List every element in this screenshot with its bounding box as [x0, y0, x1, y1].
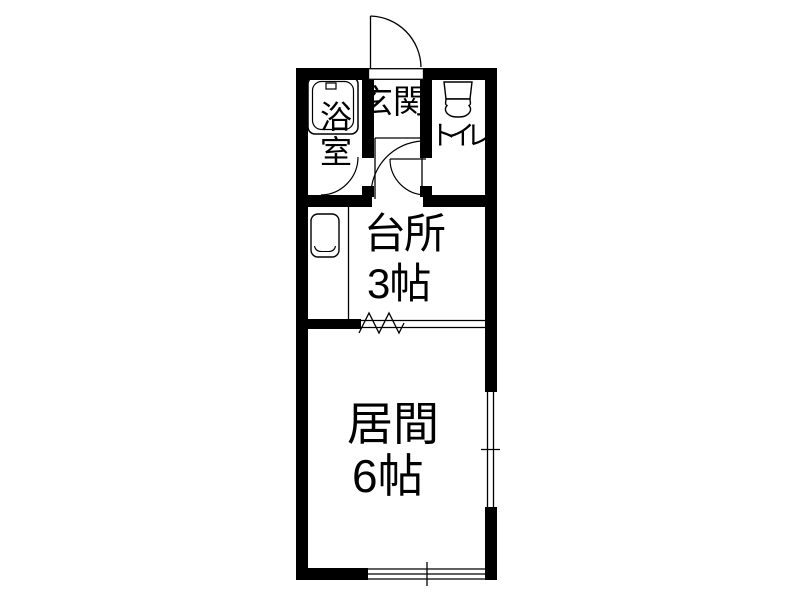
- toilet-icon: [444, 82, 472, 117]
- kitchen-size-label: 3帖: [367, 261, 430, 306]
- entrance-label: 玄関: [360, 84, 426, 120]
- wall-bottom-left: [296, 568, 368, 580]
- accordion-partition: [359, 313, 485, 333]
- wall-right-upper: [485, 68, 497, 392]
- kitchen-counter: [311, 207, 349, 319]
- living-label: 居間: [347, 400, 439, 450]
- bathroom-label: 浴室: [317, 100, 355, 170]
- kitchen-door-swing-arc: [371, 141, 422, 196]
- wall-right-lower: [485, 507, 497, 580]
- entrance-door-swing-arc: [371, 16, 422, 67]
- toilet-label: トイレ: [430, 122, 484, 151]
- kitchen-label: 台所: [364, 211, 444, 256]
- wall-mid-right: [423, 195, 497, 207]
- living-size-label: 6帖: [352, 452, 424, 502]
- accordion-fold-zigzag: [359, 313, 404, 333]
- toilet-tank: [444, 82, 472, 99]
- bathtub-handle: [326, 83, 336, 89]
- wall-kitchen-living: [296, 319, 361, 329]
- wall-mid-left: [296, 195, 372, 207]
- entrance-threshold: [369, 69, 424, 80]
- toilet-bowl: [445, 99, 470, 117]
- window-bottom: [368, 562, 485, 586]
- floorplan: 浴室 玄関 トイレ 台所 3帖 居間 6帖: [0, 0, 800, 600]
- kitchen-sink-rim: [315, 246, 336, 252]
- window-right: [481, 392, 500, 507]
- entrance-door: [369, 16, 424, 79]
- kitchen-sink-icon: [311, 214, 339, 257]
